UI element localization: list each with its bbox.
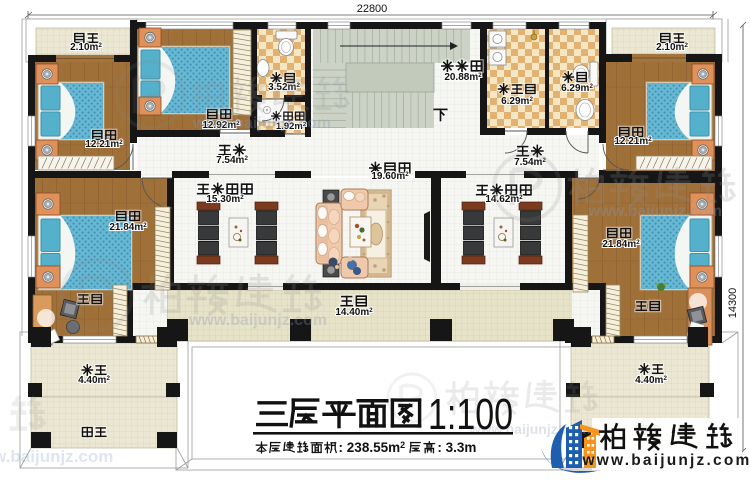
svg-text:www.baijunjz.com: www.baijunjz.com [587,203,722,220]
svg-text:21.84m2: 21.84m2 [602,239,640,250]
svg-text:15.30m2: 15.30m2 [206,194,244,205]
svg-text:12.21m2: 12.21m2 [85,139,123,150]
svg-text:21.84m2: 21.84m2 [109,222,147,233]
svg-text:4.40m2: 4.40m2 [635,375,667,386]
svg-text:4.40m2: 4.40m2 [78,375,110,386]
svg-text:www.baijunjz.com: www.baijunjz.com [0,447,113,466]
svg-text:6.29m2: 6.29m2 [501,96,533,107]
svg-text:22800: 22800 [357,3,388,15]
svg-text:19.60m2: 19.60m2 [371,171,409,182]
svg-text:238.55m2: 238.55m2 [347,440,405,455]
svg-text:6.29m2: 6.29m2 [561,83,593,94]
svg-text:14.40m2: 14.40m2 [335,307,373,318]
svg-text:7.54m2: 7.54m2 [216,155,248,166]
svg-text:14.62m2: 14.62m2 [485,194,523,205]
svg-text::: : [339,440,344,455]
svg-text:3.3m: 3.3m [446,440,477,455]
svg-text:www.baijunjz.com: www.baijunjz.com [582,452,750,469]
svg-text:12.21m2: 12.21m2 [614,136,652,147]
svg-text:20.88m2: 20.88m2 [444,72,482,83]
svg-text:14300: 14300 [727,288,739,319]
svg-text:1:100: 1:100 [428,390,513,439]
svg-text:www.baijunjz.com: www.baijunjz.com [188,312,327,329]
svg-text::: : [437,440,442,455]
svg-text:www.baijunjz.com: www.baijunjz.com [192,115,331,132]
svg-text:2.10m2: 2.10m2 [656,42,688,53]
svg-text:2.10m2: 2.10m2 [70,42,102,53]
